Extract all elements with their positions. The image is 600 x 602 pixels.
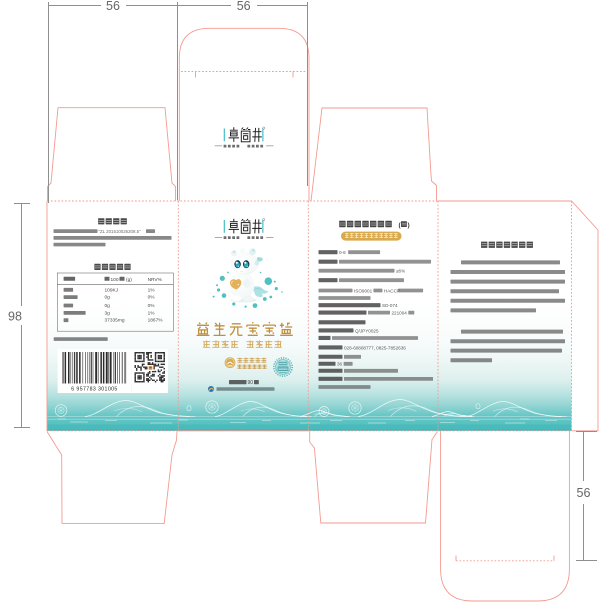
svg-text:100: 100 xyxy=(111,277,119,283)
svg-text:NRV%: NRV% xyxy=(148,277,163,283)
svg-text:0g: 0g xyxy=(105,295,111,301)
svg-text:): ) xyxy=(408,222,410,229)
svg-text:90: 90 xyxy=(248,380,254,386)
svg-text:98: 98 xyxy=(8,310,22,324)
svg-text:Q/JPY0025: Q/JPY0025 xyxy=(355,328,379,333)
svg-text:56: 56 xyxy=(106,0,120,13)
svg-text:221004: 221004 xyxy=(392,310,408,315)
svg-text:1867%: 1867% xyxy=(148,318,164,324)
svg-text:“ZL 201510026208.5”: “ZL 201510026208.5” xyxy=(99,229,142,234)
svg-text:6 957783 301005: 6 957783 301005 xyxy=(71,387,117,393)
svg-text:≥6%: ≥6% xyxy=(396,269,405,274)
svg-text:SD-074: SD-074 xyxy=(382,303,398,308)
svg-text:ISO9001: ISO9001 xyxy=(354,288,373,293)
svg-text:109KJ: 109KJ xyxy=(105,287,119,293)
svg-text:1%: 1% xyxy=(148,287,156,293)
svg-text:(g): (g) xyxy=(126,277,132,283)
svg-text:36: 36 xyxy=(337,362,343,367)
svg-text:1%: 1% xyxy=(148,310,156,316)
svg-text:028-60808777, 0825-7852636: 028-60808777, 0825-7852636 xyxy=(344,345,406,350)
svg-text:0%: 0% xyxy=(148,303,156,309)
svg-text:56: 56 xyxy=(577,486,591,500)
svg-text:0g: 0g xyxy=(105,303,111,309)
svg-text:HACCP: HACCP xyxy=(384,288,400,293)
svg-text:56: 56 xyxy=(237,0,251,13)
svg-text:0-6: 0-6 xyxy=(339,250,346,255)
svg-text:0%: 0% xyxy=(148,295,156,301)
svg-text:3g: 3g xyxy=(105,310,111,316)
svg-text:37335mg: 37335mg xyxy=(105,318,125,324)
